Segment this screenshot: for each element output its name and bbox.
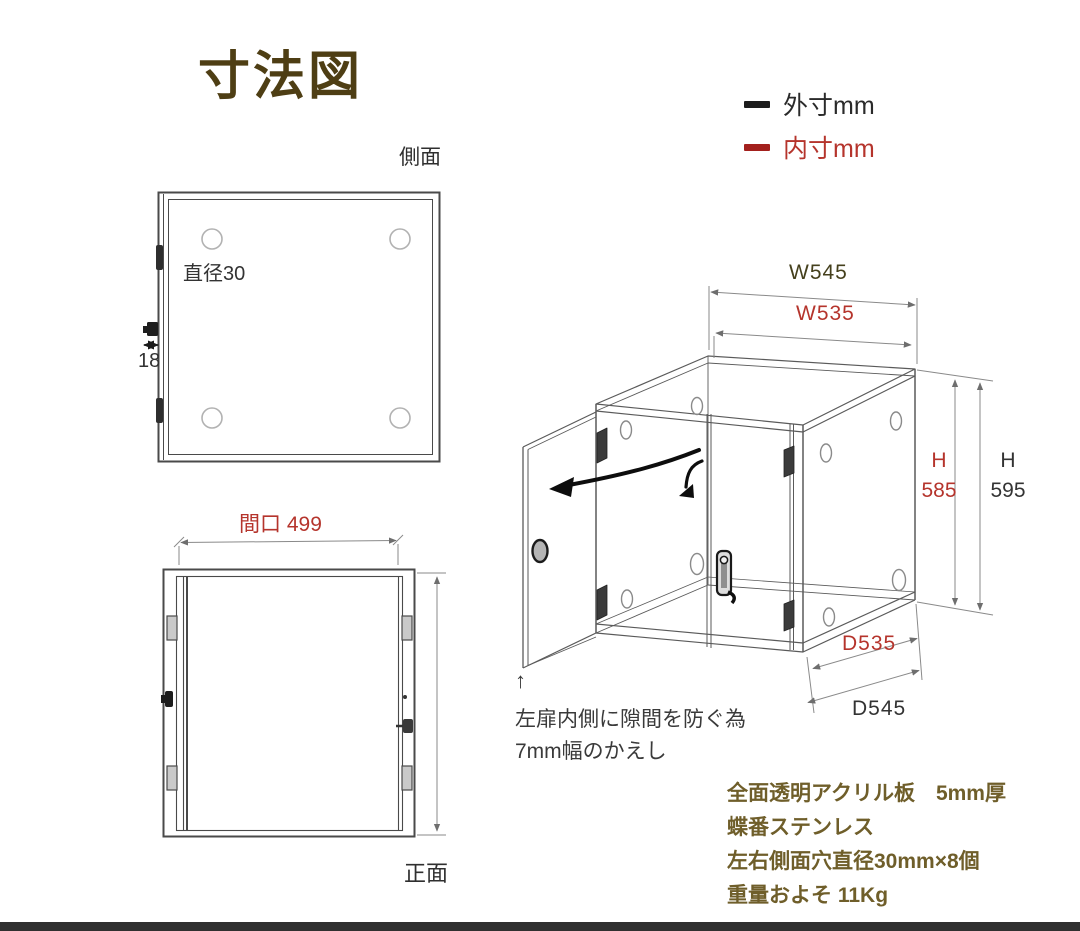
spec-line-hinge: 蝶番ステンレス: [727, 811, 874, 841]
front-view-drawing: [161, 535, 446, 837]
spec-line-material: 全面透明アクリル板 5mm厚: [727, 777, 1006, 807]
hole-diameter-label: 直径30: [183, 257, 245, 286]
dim-height-inner: H 585: [918, 446, 960, 506]
opening-width-label: 間口 499: [239, 508, 322, 538]
side-view-drawing: [143, 193, 440, 462]
bottom-edge-bar: [0, 922, 1080, 931]
spec-line-weight: 重量およそ 11Kg: [727, 879, 888, 909]
legend-inner-label: 内寸mm: [783, 129, 875, 165]
page-title: 寸法図: [198, 34, 363, 109]
dimension-drawing-page: 寸法図 外寸mm 内寸mm 側面 直径30 18 間口 499 正面 W545 …: [0, 0, 1080, 931]
side-view-label: 側面: [399, 141, 441, 171]
side-hinge-top: [156, 245, 163, 270]
side-panel-holes: [621, 398, 906, 627]
dim-width-outer: W545: [789, 261, 848, 285]
legend-outer: 外寸mm: [744, 86, 875, 122]
legend-inner: 内寸mm: [744, 129, 875, 165]
legend-outer-dash: [744, 101, 770, 108]
iso-door-handle: [717, 551, 734, 603]
front-latch: [403, 719, 413, 733]
open-door-handle: [533, 540, 548, 562]
front-handle: [165, 691, 173, 707]
dim-width-inner: W535: [796, 302, 855, 326]
dim-height-outer: H 595: [985, 446, 1031, 506]
iso-hinges: [597, 428, 794, 631]
door-note-arrow: ↑: [515, 668, 526, 694]
spec-line-holes: 左右側面穴直径30mm×8個: [727, 845, 980, 875]
front-view-label: 正面: [404, 856, 448, 888]
door-swing-arrow: [549, 450, 702, 498]
door-note-line2: 7mm幅のかえし: [515, 735, 667, 765]
thickness-label: 18: [138, 350, 160, 373]
side-knob: [147, 322, 158, 336]
open-door: [523, 412, 596, 668]
side-hinge-bottom: [156, 398, 163, 423]
door-note-line1: 左扉内側に隙間を防ぐ為: [515, 703, 746, 733]
dim-depth-inner: D535: [842, 632, 896, 656]
legend-inner-dash: [744, 144, 770, 151]
legend-outer-label: 外寸mm: [783, 86, 875, 122]
dim-depth-outer: D545: [852, 697, 906, 721]
